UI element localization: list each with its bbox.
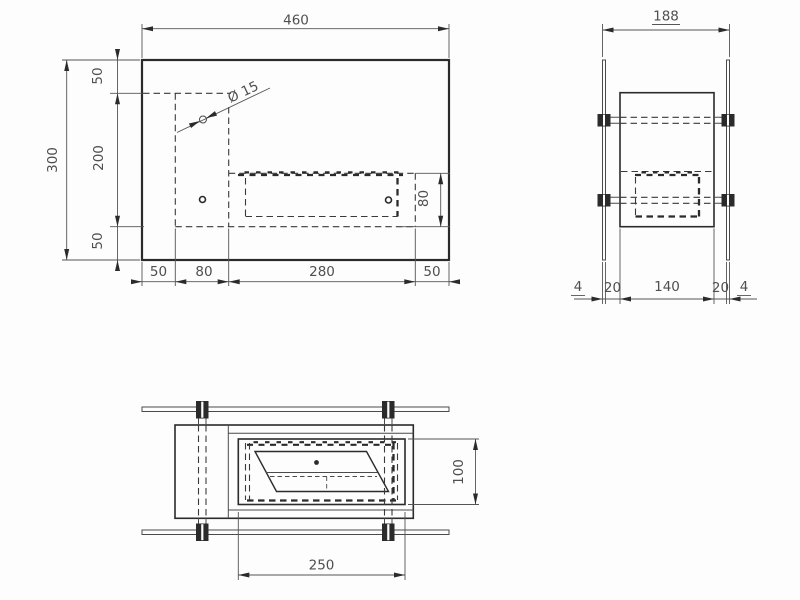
dim-bottom-depth-group: 100 (408, 439, 479, 505)
dim-front-chain-bottom: 50 80 280 50 (131, 229, 460, 287)
hole-diameter-callout: Ø 15 (177, 78, 270, 132)
dim-front-height: 300 (45, 147, 61, 173)
side-body-outline (620, 93, 714, 227)
dim-front-bottom-0: 50 (150, 264, 167, 280)
dim-front-width-group: 460 (142, 13, 449, 59)
front-hidden-lines (143, 93, 415, 226)
dim-front-chain-left: 50 200 50 (90, 49, 144, 271)
dim-front-hole: Ø 15 (225, 78, 261, 106)
dim-front-bottom-2: 280 (309, 264, 335, 280)
bottom-plate-top (142, 407, 449, 412)
dim-side-1: 20 (604, 280, 621, 296)
front-hole-lower-right (386, 197, 392, 203)
front-hole-lower-left (200, 197, 206, 203)
front-panel-outline (142, 60, 449, 260)
dim-side-width: 188 (653, 9, 679, 25)
front-view: Ø 15 460 300 50 200 50 (45, 13, 460, 287)
technical-drawing: Ø 15 460 300 50 200 50 (0, 0, 800, 600)
dim-front-opening-group: 80 (399, 173, 450, 226)
front-hole-upper (200, 116, 207, 123)
side-plate-left (603, 60, 606, 260)
side-hidden-burner (621, 172, 713, 217)
dim-front-left-0: 50 (90, 67, 106, 84)
dim-front-opening: 80 (416, 190, 432, 207)
bottom-plate-bottom (142, 530, 449, 535)
dim-front-bottom-3: 50 (423, 264, 440, 280)
dim-bottom-length: 250 (309, 558, 335, 574)
bottom-view: 250 100 (142, 401, 479, 580)
dim-side-2: 140 (654, 279, 680, 295)
dim-bottom-length-group: 250 (238, 512, 405, 580)
dim-side-3: 20 (712, 280, 729, 296)
dim-front-width: 460 (283, 13, 309, 29)
side-plate-right (727, 60, 730, 260)
bottom-flame-guard (255, 452, 389, 492)
dim-front-left-1: 200 (91, 145, 107, 171)
side-view: 188 4 20 140 20 4 (571, 9, 757, 305)
dim-front-left-2: 50 (90, 232, 106, 249)
drawing-canvas: Ø 15 460 300 50 200 50 (0, 0, 800, 600)
dim-side-width-group: 188 (603, 9, 730, 58)
dim-front-bottom-1: 80 (195, 264, 212, 280)
bottom-guard-hole (314, 460, 319, 465)
dim-bottom-depth: 100 (451, 459, 467, 485)
dim-side-4: 4 (740, 279, 749, 295)
dim-side-0: 4 (574, 279, 583, 295)
